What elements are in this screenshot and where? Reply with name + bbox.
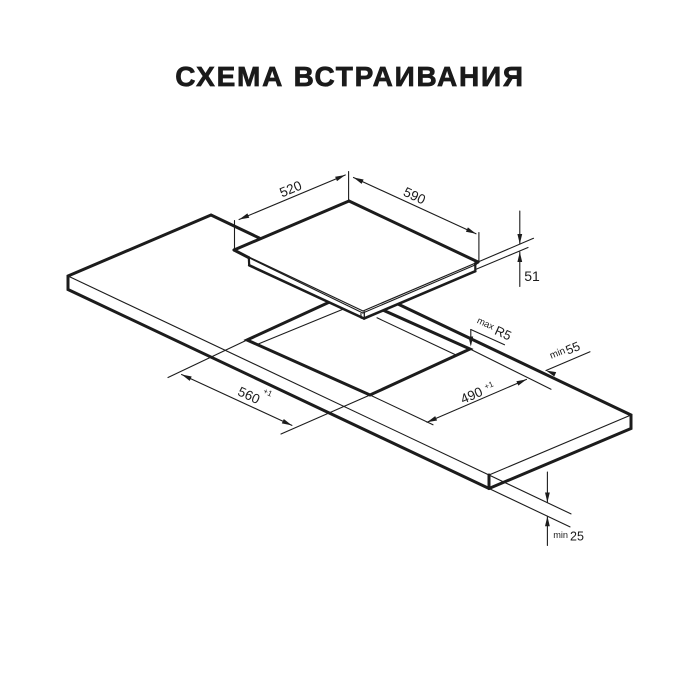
svg-text:25: 25 [570, 529, 584, 543]
svg-text:min: min [553, 530, 568, 540]
svg-text:51: 51 [524, 268, 540, 284]
